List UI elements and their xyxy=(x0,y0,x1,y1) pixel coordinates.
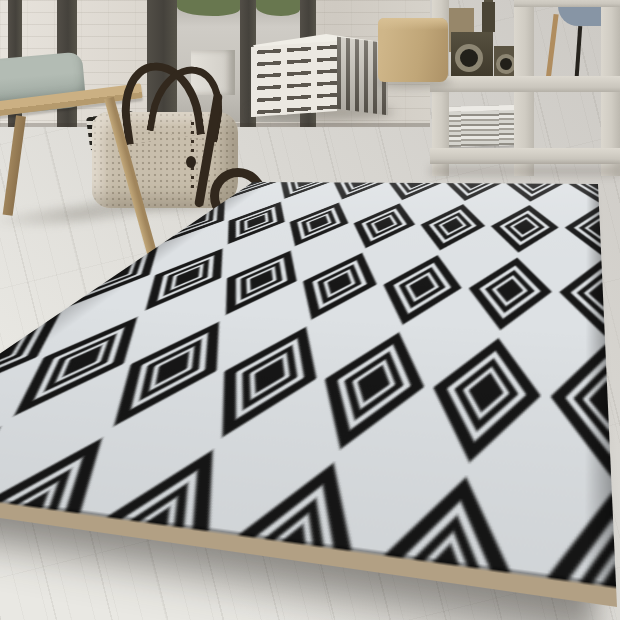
foliage-outside-1 xyxy=(177,0,240,16)
toy-camera-large xyxy=(451,32,493,76)
bag-toggle xyxy=(186,156,196,168)
newspaper-stack xyxy=(443,105,516,147)
striped-pouf xyxy=(251,34,388,116)
striped-pouf-front xyxy=(251,41,337,117)
toy-chimney xyxy=(482,2,495,32)
shelf-horizontal-bar-1 xyxy=(430,76,620,92)
tan-pouf xyxy=(378,18,448,82)
toy-knob xyxy=(484,0,493,2)
foliage-outside-2 xyxy=(256,0,300,16)
shelf-horizontal-bar-2 xyxy=(430,148,620,164)
toy-camera-small xyxy=(494,46,514,76)
room-scene xyxy=(0,0,620,620)
shelf-horizontal-bar-top xyxy=(514,0,620,7)
shelf-divider xyxy=(430,0,620,176)
shelf-floor-shadow xyxy=(430,166,620,176)
